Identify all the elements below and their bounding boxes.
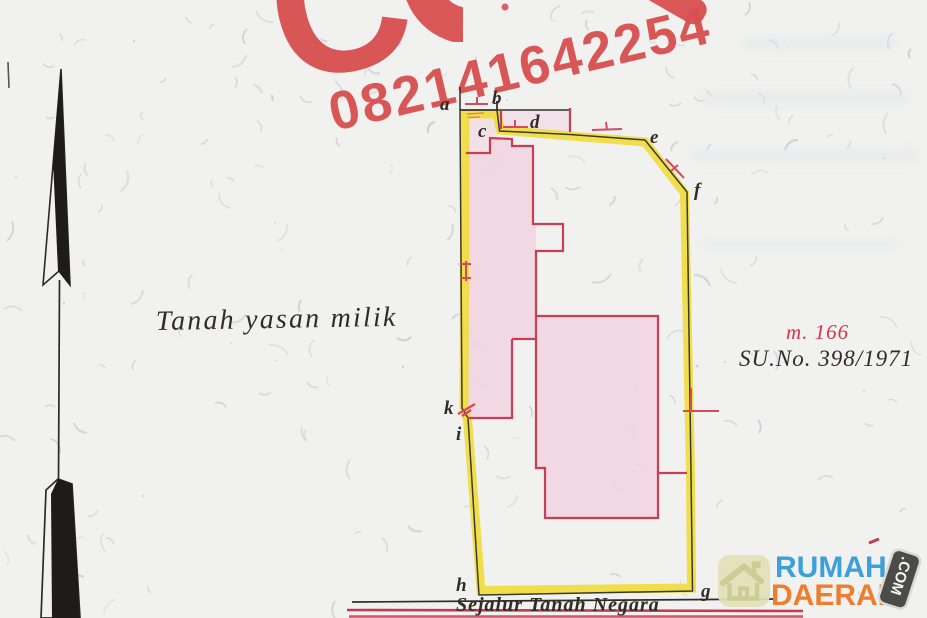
svg-text:e: e bbox=[650, 127, 659, 148]
svg-text:Tanah yasan milik: Tanah yasan milik bbox=[156, 302, 398, 337]
svg-text:i: i bbox=[456, 424, 462, 445]
svg-text:h: h bbox=[456, 575, 467, 596]
svg-text:SU.No. 398/1971: SU.No. 398/1971 bbox=[739, 346, 913, 371]
svg-text:m. 166: m. 166 bbox=[786, 320, 849, 344]
svg-text:g: g bbox=[700, 581, 711, 602]
svg-text:d: d bbox=[530, 112, 540, 133]
svg-text:b: b bbox=[492, 88, 502, 109]
svg-text:Sejalur Tanah Negara: Sejalur Tanah Negara bbox=[456, 594, 660, 616]
svg-text:c: c bbox=[478, 121, 487, 142]
svg-text:k: k bbox=[444, 398, 454, 419]
svg-text:a: a bbox=[440, 94, 450, 115]
